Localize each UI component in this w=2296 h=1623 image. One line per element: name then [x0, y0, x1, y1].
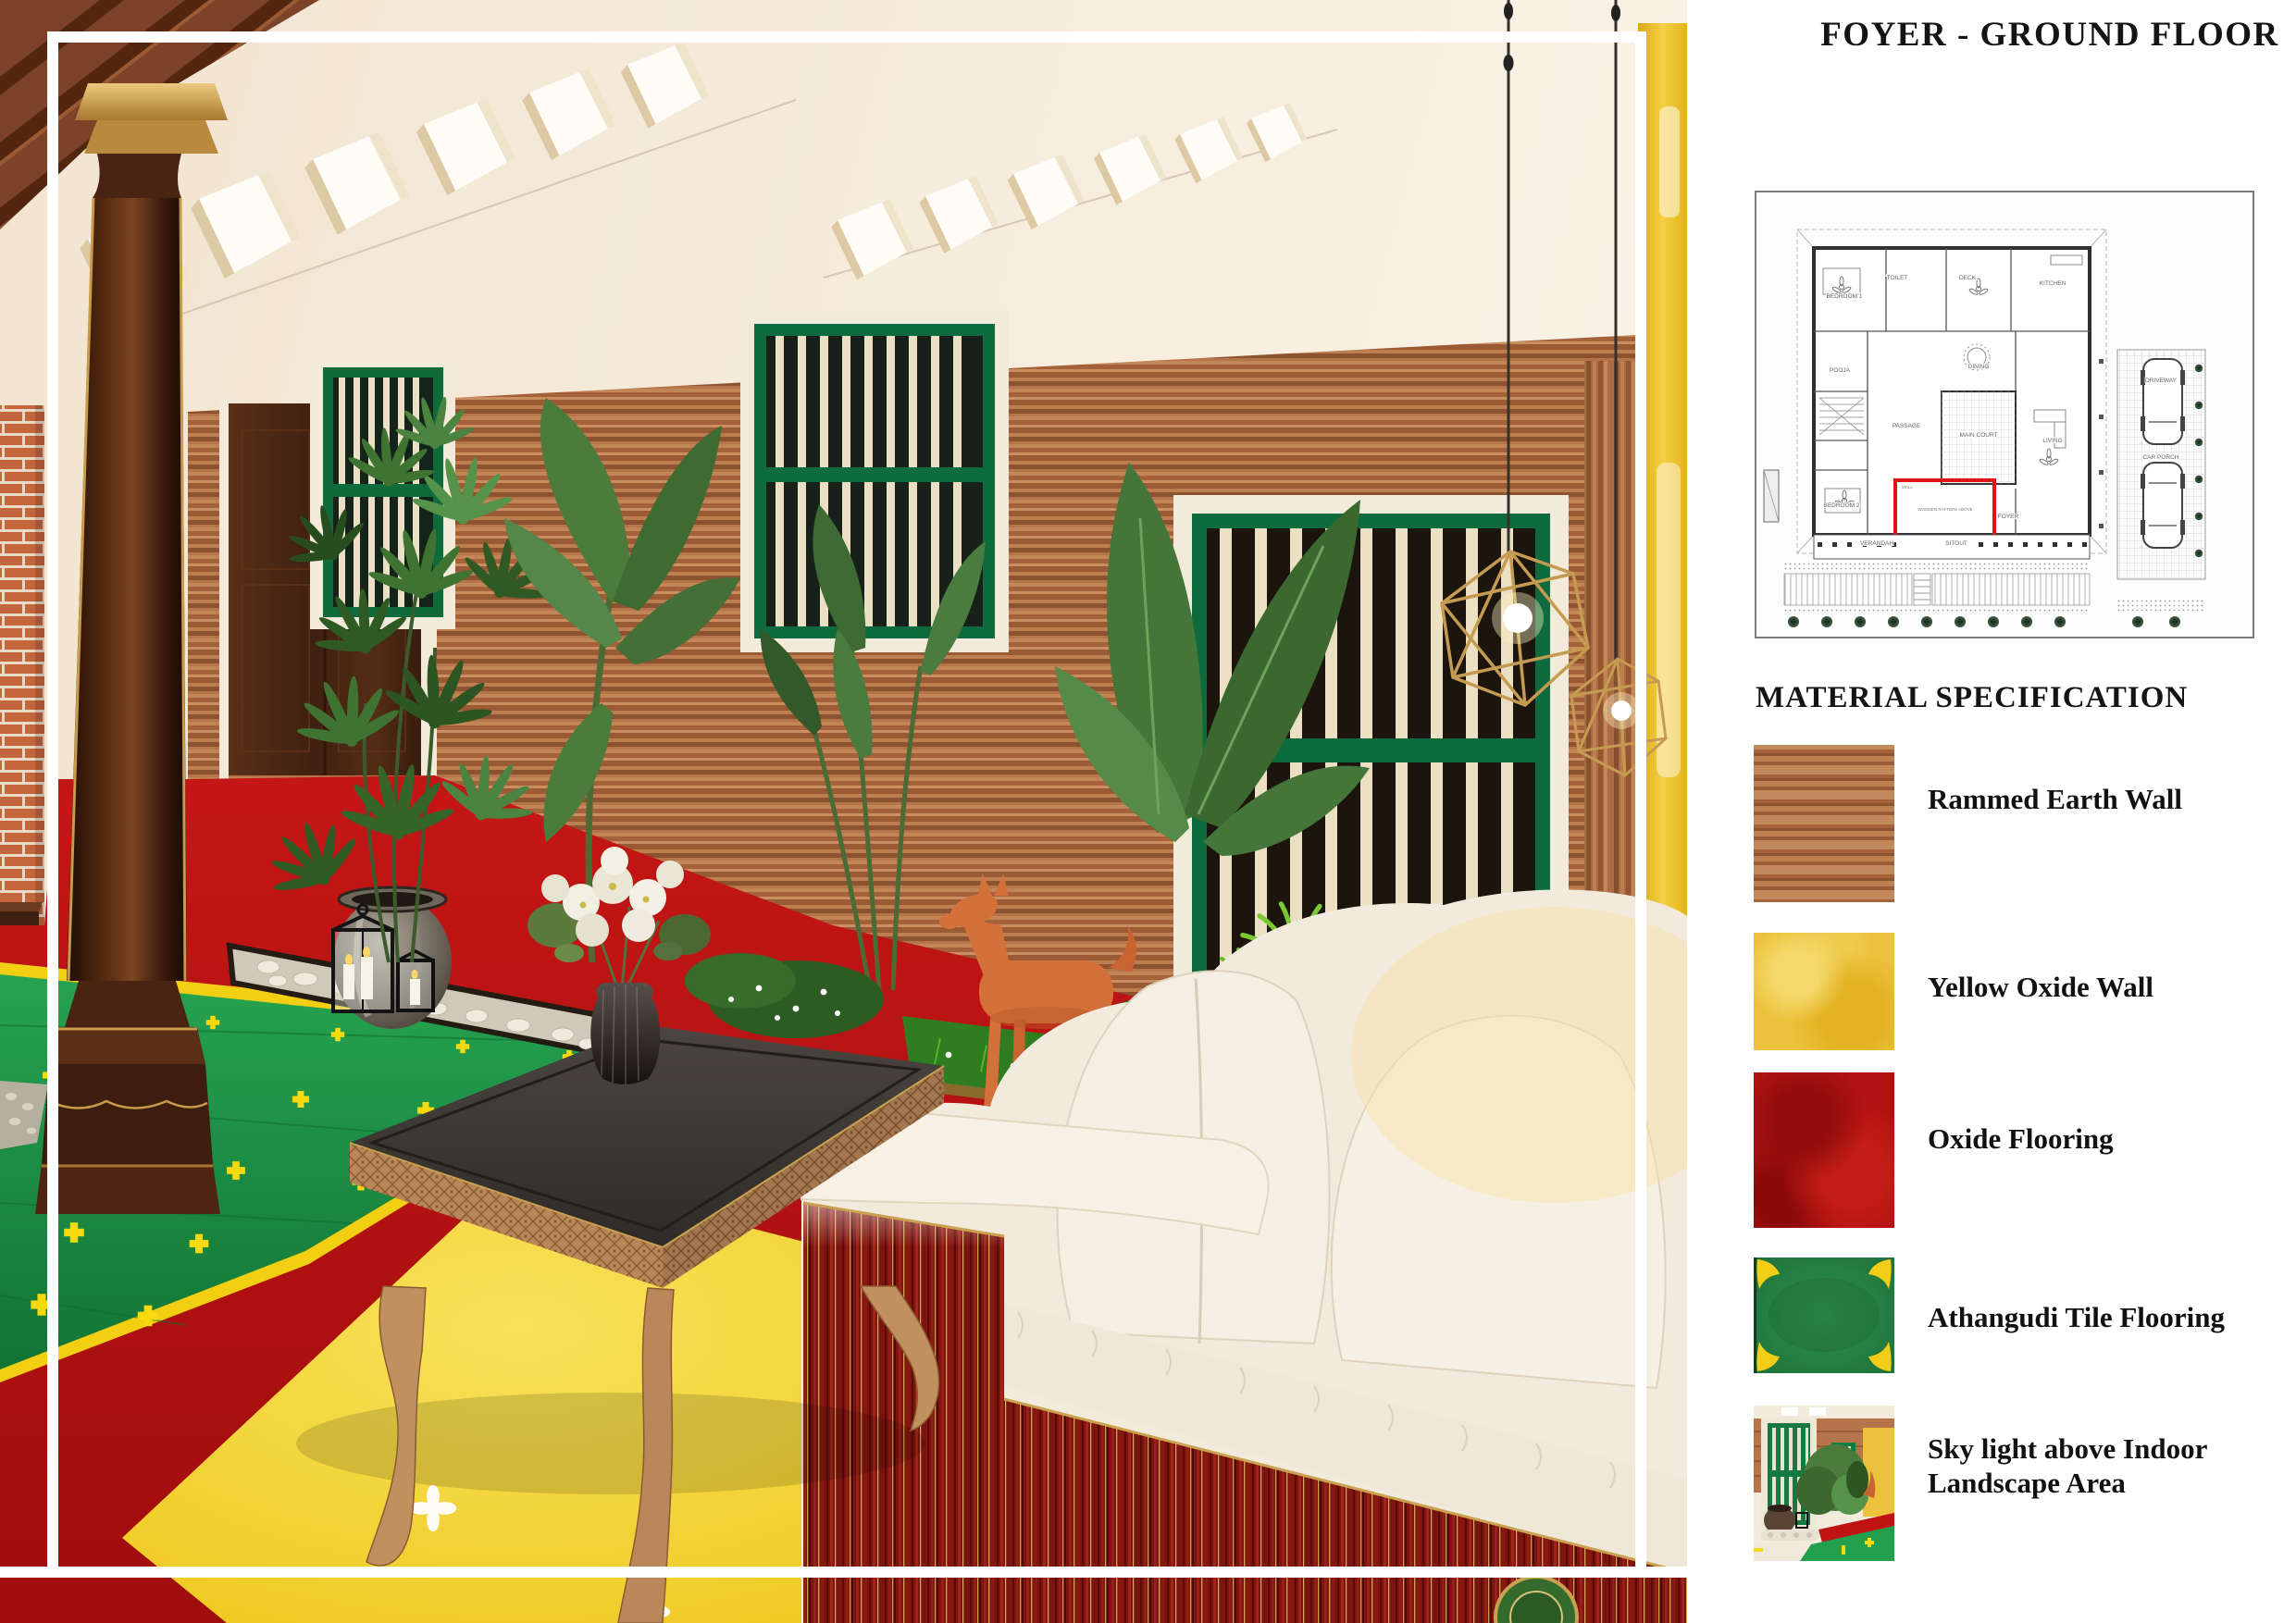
material-label: Athangudi Tile Flooring — [1928, 1301, 2296, 1335]
plan-label: BEDROOM 2 — [1823, 502, 1859, 509]
plan-label: TOILET — [1887, 275, 1908, 281]
foyer-render-image — [0, 0, 1687, 1623]
material-swatch-athangudi-tile — [1754, 1258, 1894, 1373]
plan-label: VERANDAH — [1860, 540, 1893, 547]
material-label: Rammed Earth Wall — [1928, 783, 2296, 817]
plan-label: SITOUT — [1945, 540, 1967, 547]
plan-label: CAR PORCH — [2142, 454, 2178, 461]
presentation-board: FOYER - GROUND FLOOR — [0, 0, 2296, 1623]
material-swatch-oxide-flooring — [1754, 1072, 1894, 1228]
floor-plan-thumbnail: BEDROOM 1 TOILET DECK DINING KITCHEN POO… — [1755, 191, 2254, 638]
plan-label: KITCHEN — [2040, 280, 2066, 287]
plan-label: FOYER — [1998, 514, 2019, 520]
plan-label: MAIN COURT — [1959, 432, 1997, 439]
page-title: FOYER - GROUND FLOOR — [1805, 15, 2295, 55]
pendant-bulb — [1611, 700, 1632, 721]
material-label: Yellow Oxide Wall — [1928, 971, 2296, 1005]
pendant-bulb — [1503, 603, 1533, 633]
section-heading: MATERIAL SPECIFICATION — [1756, 681, 2188, 715]
brick-pillar — [0, 405, 44, 925]
floor-plan-drawing: BEDROOM 1 TOILET DECK DINING KITCHEN POO… — [1756, 192, 2253, 637]
plan-label: WOODEN RAFTERS ABOVE — [1917, 507, 1973, 512]
material-label: Sky light above Indoor Landscape Area — [1928, 1432, 2296, 1500]
material-swatch-yellow-oxide — [1754, 933, 1894, 1050]
plan-label: DINING — [1968, 364, 1990, 370]
material-label: Oxide Flooring — [1928, 1122, 2296, 1157]
foyer-render-scene — [0, 0, 1687, 1623]
material-swatch-skylight-photo — [1754, 1406, 1894, 1561]
plan-label: DECK — [1959, 275, 1977, 281]
candle-lantern-small — [398, 951, 433, 1010]
plan-label: WALL — [1902, 485, 1914, 489]
plan-label: LIVING — [2042, 438, 2062, 444]
plan-label: PASSAGE — [1893, 423, 1921, 429]
plan-label: BEDROOM 1 — [1826, 293, 1862, 300]
plan-label: POOJA — [1830, 367, 1851, 374]
material-swatch-rammed-earth — [1754, 745, 1894, 902]
plan-label: DRIVEWAY — [2145, 378, 2178, 384]
